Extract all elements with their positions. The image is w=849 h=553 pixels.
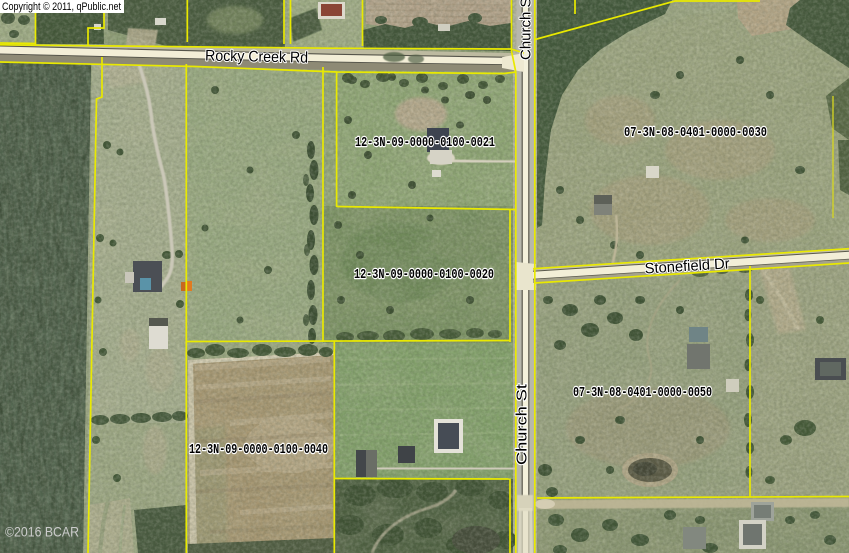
svg-text:Church St: Church St bbox=[514, 383, 531, 465]
svg-text:Church St: Church St bbox=[518, 0, 535, 60]
svg-text:12-3N-09-0000-0100-0021: 12-3N-09-0000-0100-0021 bbox=[355, 135, 495, 151]
svg-text:12-3N-09-0000-0100-0040: 12-3N-09-0000-0100-0040 bbox=[189, 442, 328, 458]
svg-text:Copyright © 2011, qPublic.net: Copyright © 2011, qPublic.net bbox=[2, 1, 121, 13]
svg-text:07-3N-08-0401-0000-0030: 07-3N-08-0401-0000-0030 bbox=[624, 125, 767, 141]
svg-text:Rocky Creek Rd: Rocky Creek Rd bbox=[205, 48, 308, 67]
svg-text:07-3N-08-0401-0000-0050: 07-3N-08-0401-0000-0050 bbox=[573, 385, 712, 401]
svg-text:©2016 BCAR: ©2016 BCAR bbox=[5, 524, 79, 540]
svg-text:12-3N-09-0000-0100-0020: 12-3N-09-0000-0100-0020 bbox=[354, 267, 494, 283]
